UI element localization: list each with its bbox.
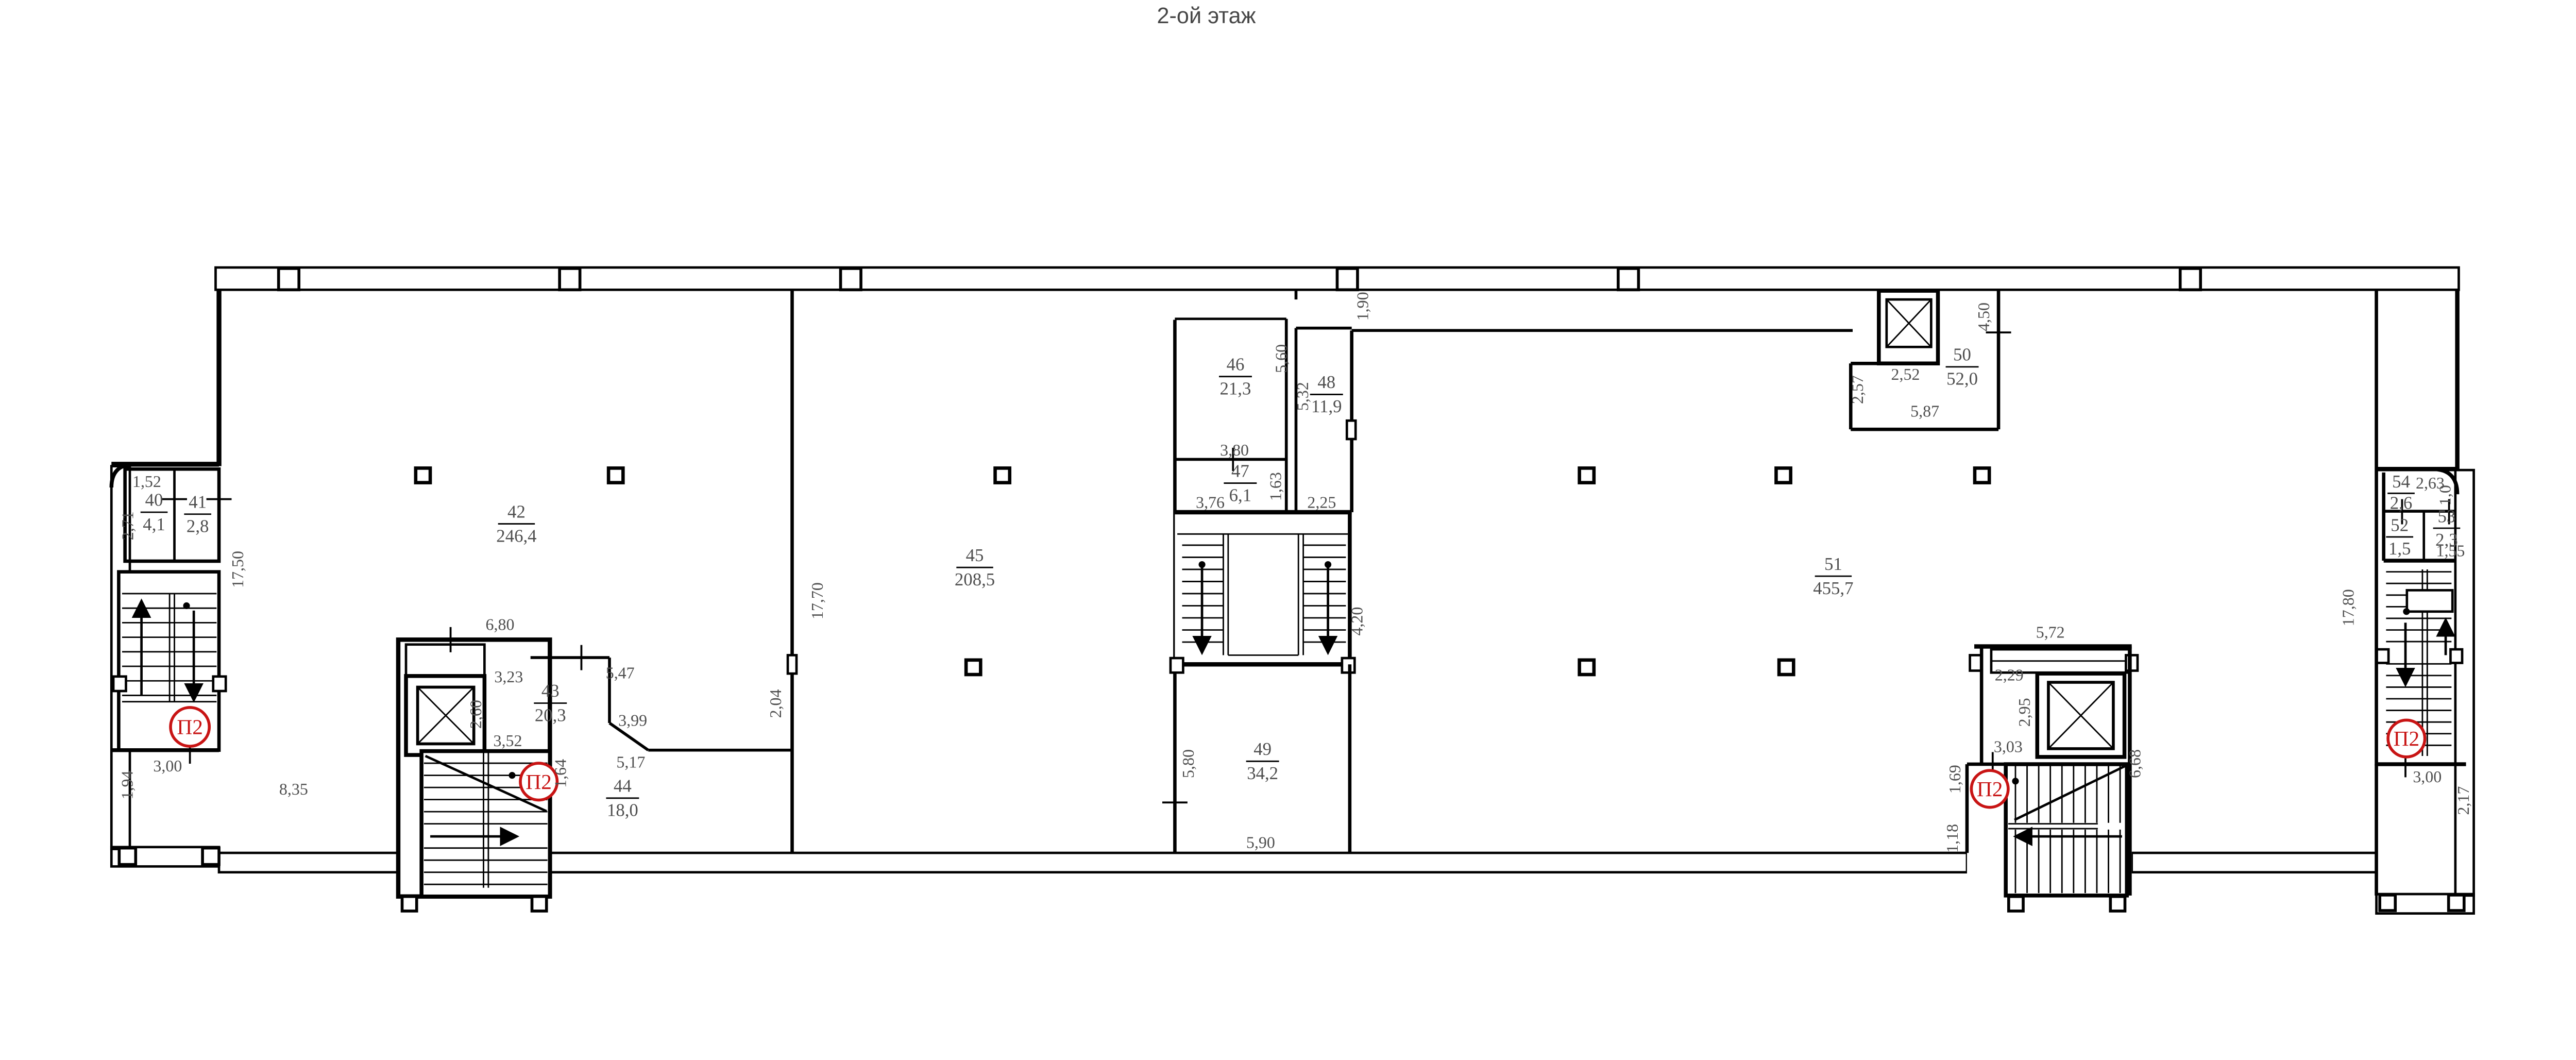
room-number: 51 <box>1824 554 1842 574</box>
dim-4-20: 4,20 <box>1348 607 1366 636</box>
stair-badge-left-wing: П2 <box>171 708 209 746</box>
dim-6-68: 6,68 <box>2126 749 2144 778</box>
stair-arrow-origin-dot <box>183 602 190 609</box>
room-number: 48 <box>1317 372 1335 392</box>
column <box>608 468 623 482</box>
corner-pier <box>2009 897 2023 911</box>
room-area: 11,9 <box>1311 396 1342 416</box>
floor-plan-sheet: П2 П2 <box>0 0 2576 997</box>
room-number: 40 <box>145 490 163 510</box>
block-right-middle: П2 <box>1967 645 2138 911</box>
dim-2-25: 2,25 <box>1307 494 1336 512</box>
stair-badge-right-wing: П2 <box>2388 720 2425 756</box>
dim-2-04: 2,04 <box>767 689 785 718</box>
dim-5-60: 5,60 <box>1273 344 1291 373</box>
room-area: 1,5 <box>2388 539 2411 559</box>
page-title: 2-ой этаж <box>1157 4 1256 28</box>
dim-2-17: 2,17 <box>2454 786 2472 815</box>
room-area: 52,0 <box>1946 369 1978 389</box>
dim-1-69: 1,69 <box>1946 765 1964 794</box>
room-area: 21,3 <box>1220 378 1251 398</box>
wall-pier <box>788 655 796 674</box>
stair-side-pier <box>2450 649 2462 663</box>
room-number: 49 <box>1253 739 1272 759</box>
room-number: 45 <box>966 545 984 565</box>
corner-pier <box>1970 655 1982 670</box>
corner-pier <box>1171 658 1183 672</box>
dim-3-80: 3,80 <box>1220 441 1249 459</box>
dim-2-60: 2,60 <box>467 700 485 729</box>
dim-1-63: 1,63 <box>1266 472 1284 501</box>
dim-3-00-left: 3,00 <box>153 757 182 775</box>
room-number: 54 <box>2392 472 2410 492</box>
dim-5-90: 5,90 <box>1246 834 1275 852</box>
dim-1-64: 1,64 <box>551 759 569 788</box>
corner-pier <box>532 897 547 911</box>
stair-landing-nose <box>2407 590 2452 611</box>
room-area: 208,5 <box>955 569 995 590</box>
corner-pier <box>2449 895 2464 911</box>
elevator-shaft-icon <box>1879 291 1938 363</box>
column <box>1776 468 1790 482</box>
stair-side-pier <box>213 677 226 691</box>
dim-2-95: 2,95 <box>2015 698 2033 727</box>
room-area: 246,4 <box>496 526 536 546</box>
dim-17-80: 17,80 <box>2339 589 2357 626</box>
stair-central <box>1171 510 1354 672</box>
wall-pier <box>1347 420 1355 439</box>
dim-5-87: 5,87 <box>1910 402 1939 420</box>
elevator-shaft-icon <box>2037 674 2124 757</box>
column <box>1580 468 1594 482</box>
corner-pier <box>2110 897 2125 911</box>
column <box>1779 660 1793 675</box>
column <box>966 660 980 675</box>
stair-right-middle <box>2006 764 2127 896</box>
room-area: 2,6 <box>2390 493 2412 513</box>
room-number: 53 <box>2438 507 2456 527</box>
dim-5-47: 5,47 <box>606 664 635 682</box>
dim-2-71: 2,71 <box>119 511 137 540</box>
room-area: 18,0 <box>607 800 638 820</box>
dim-3-52: 3,52 <box>494 732 522 750</box>
stair-arrow-origin-dot <box>509 772 515 779</box>
column <box>1580 660 1594 675</box>
dim-5-32: 5,32 <box>1294 382 1312 411</box>
dim-1-90: 1,90 <box>1354 292 1372 321</box>
paper-background <box>0 0 2576 997</box>
stair-arrow-origin-dot <box>1199 561 1206 568</box>
dim-17-50: 17,50 <box>229 551 247 588</box>
column <box>416 468 430 482</box>
stair-arrow-origin-dot <box>2012 778 2019 784</box>
dim-5-17: 5,17 <box>616 753 645 771</box>
exit-stair-badge-label: П2 <box>526 770 552 794</box>
stair-side-pier <box>113 677 126 691</box>
dim-1-52: 1,52 <box>132 473 161 491</box>
dim-2-29: 2,29 <box>1995 666 2024 684</box>
room-number: 41 <box>189 492 207 512</box>
room-area: 20,3 <box>535 705 566 725</box>
dim-17-70: 17,70 <box>808 582 826 619</box>
room-number: 52 <box>2391 515 2409 535</box>
stair-arrow-origin-dot <box>1325 561 1331 568</box>
column <box>1975 468 1989 482</box>
room-area: 455,7 <box>1813 578 1853 598</box>
dim-5-72: 5,72 <box>2036 624 2065 642</box>
corner-pier <box>402 897 417 911</box>
dim-8-35: 8,35 <box>279 780 308 798</box>
dim-1-55: 1,55 <box>2436 542 2465 560</box>
dim-3-00-right: 3,00 <box>2413 768 2442 786</box>
exit-stair-badge-label: П2 <box>177 715 203 739</box>
floor-plan-drawing: П2 П2 <box>0 0 2576 997</box>
room-number: 43 <box>541 681 560 701</box>
stair-side-pier <box>2377 649 2389 663</box>
dim-4-50: 4,50 <box>1975 302 1993 331</box>
exit-stair-badge-label: П2 <box>2394 727 2420 750</box>
dim-1-0: 1,0 <box>2436 485 2454 506</box>
dim-6-80: 6,80 <box>485 615 514 633</box>
corner-pier <box>2380 895 2395 911</box>
room-number: 46 <box>1227 354 1245 374</box>
room-area: 2,8 <box>187 516 209 536</box>
dim-3-23: 3,23 <box>494 668 523 686</box>
corner-pier <box>119 848 135 865</box>
column <box>995 468 1010 482</box>
room-number: 44 <box>614 776 632 796</box>
room-number: 47 <box>1231 461 1249 481</box>
stair-badge-right-middle: П2 <box>1971 770 2008 807</box>
room-area: 6,1 <box>1229 485 1251 505</box>
room-area: 34,2 <box>1247 763 1278 783</box>
dim-2-57: 2,57 <box>1849 375 1867 404</box>
dim-2-52: 2,52 <box>1891 365 1920 383</box>
room-number: 42 <box>507 501 526 521</box>
room-number: 50 <box>1953 345 1971 365</box>
room-area: 4,1 <box>143 514 165 534</box>
corner-pier <box>202 848 219 865</box>
dim-3-76: 3,76 <box>1196 494 1225 512</box>
dim-5-80: 5,80 <box>1179 749 1197 778</box>
dim-3-03: 3,03 <box>1994 737 2023 755</box>
exit-stair-badge-label: П2 <box>1977 777 2003 801</box>
stair-arrow-origin-dot <box>2403 608 2410 615</box>
dim-1-18: 1,18 <box>1943 824 1961 853</box>
dim-1-94: 1,94 <box>118 770 137 799</box>
dim-3-99: 3,99 <box>618 712 647 730</box>
